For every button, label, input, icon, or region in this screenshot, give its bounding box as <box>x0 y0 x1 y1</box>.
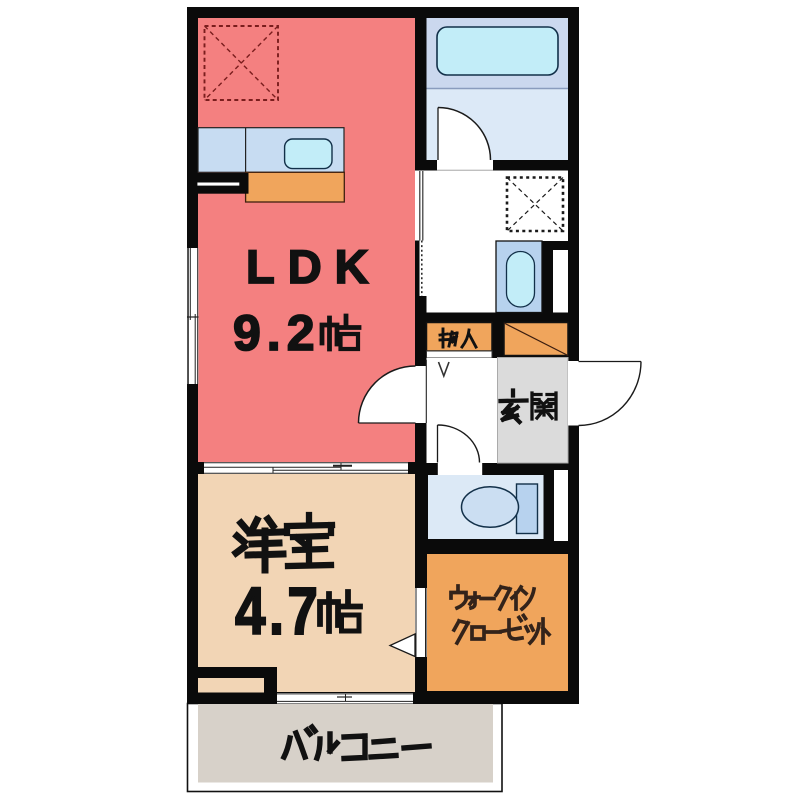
svg-text:LDK: LDK <box>246 240 382 293</box>
svg-text:9.2: 9.2 <box>233 305 321 361</box>
svg-text:4.7: 4.7 <box>235 574 321 648</box>
